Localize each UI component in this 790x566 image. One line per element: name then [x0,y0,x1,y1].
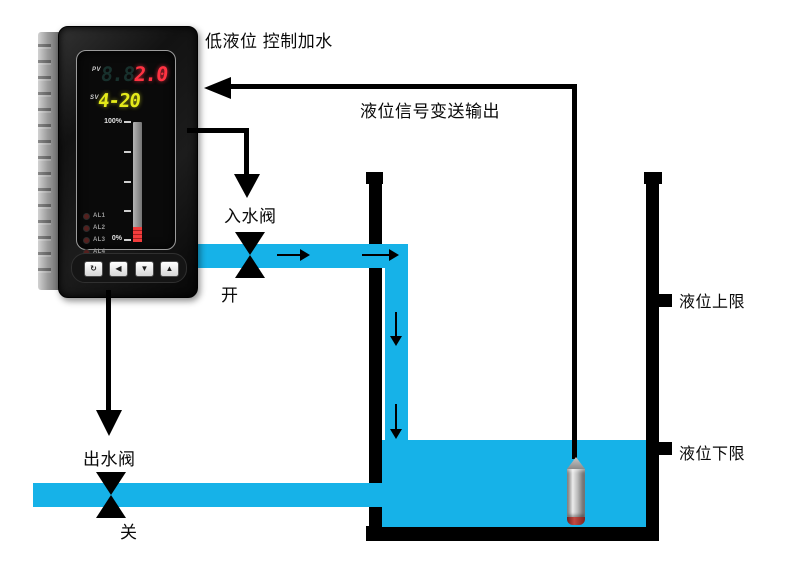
led-label: AL1 [93,213,105,219]
lower-limit-marker-icon [657,442,672,455]
probe-body [567,469,585,517]
level-control-diagram: PV 8.82.0 SV 4-20 100% 0% AL1 AL2 AL3 AL… [0,0,790,566]
inlet-control-arrowhead-icon [234,174,260,198]
pv-readout: 8.82.0 [100,64,169,84]
led-label: AL2 [93,225,105,231]
down-key-button[interactable]: ▼ [135,261,154,277]
flow-arrow-down-icon [395,404,397,430]
led-dot-icon [83,237,90,244]
bargraph-fill [133,227,142,242]
led-dot-icon [83,213,90,220]
outlet-valve-icon [96,472,126,495]
bargraph-tick [124,121,131,123]
pv-ghost-segments: 8.8 [100,62,136,86]
inlet-valve-label: 入水阀 [224,202,277,227]
probe-cone [567,457,585,469]
alarm-led-al3: AL3 [83,235,105,245]
outlet-valve-icon [96,495,126,518]
alarm-led-al2: AL2 [83,223,105,233]
up-key-button[interactable]: ▲ [160,261,179,277]
down-arrow-icon: ▼ [141,264,149,273]
inlet-valve-icon [235,255,265,278]
led-label: AL3 [93,237,105,243]
up-arrow-icon: ▲ [166,264,174,273]
tank-water [382,440,646,527]
bargraph-tick [124,151,131,153]
inlet-valve-state: 开 [221,281,239,306]
lower-limit-label: 液位下限 [679,440,745,464]
tank-bottom [366,526,659,541]
flow-arrow-right-icon [277,254,301,256]
bargraph-tick [124,181,131,183]
inlet-valve-icon [235,232,265,255]
left-arrow-icon: ◀ [115,264,121,273]
pv-label: PV [92,67,101,73]
bargraph-tick [124,210,131,212]
diagram-title: 低液位 控制加水 [205,27,333,52]
outlet-control-arrowhead-icon [96,410,122,436]
signal-arrowhead-left-icon [204,77,231,99]
controller-front-panel: PV 8.82.0 SV 4-20 100% 0% AL1 AL2 AL3 AL… [58,26,198,298]
alarm-led-al1: AL1 [83,211,105,221]
inlet-control-wire-vertical [244,128,249,176]
sensor-cable [572,84,577,459]
sv-value: 4-20 [97,92,141,111]
led-dot-icon [83,225,90,232]
controller-keypad: ↻ ◀ ▼ ▲ [71,253,187,283]
pv-value: 2.0 [133,62,169,86]
outlet-valve-label: 出水阀 [83,445,136,470]
signal-output-label: 液位信号变送输出 [360,97,500,122]
flow-arrow-right-icon [362,254,390,256]
tank-left-wall [369,172,382,528]
probe-tip [567,517,585,525]
shift-key-button[interactable]: ◀ [109,261,128,277]
signal-wire-horizontal [226,84,577,89]
level-controller: PV 8.82.0 SV 4-20 100% 0% AL1 AL2 AL3 AL… [38,26,196,296]
upper-limit-marker-icon [657,294,672,307]
controller-display: PV 8.82.0 SV 4-20 100% 0% AL1 AL2 AL3 AL… [76,50,176,250]
tank-right-wall [646,172,659,540]
outlet-pipe [33,483,383,507]
flow-arrow-down-icon [395,312,397,337]
level-sensor-probe [567,457,585,525]
inlet-control-wire-horizontal [187,128,249,133]
rotate-icon: ↻ [90,264,97,273]
bargraph-tick [124,239,131,241]
bargraph-100-label: 100% [87,118,122,125]
upper-limit-label: 液位上限 [679,288,745,312]
outlet-control-wire-vertical [106,290,111,412]
bargraph-track [133,122,142,242]
set-key-button[interactable]: ↻ [84,261,103,277]
outlet-valve-state: 关 [120,518,138,543]
